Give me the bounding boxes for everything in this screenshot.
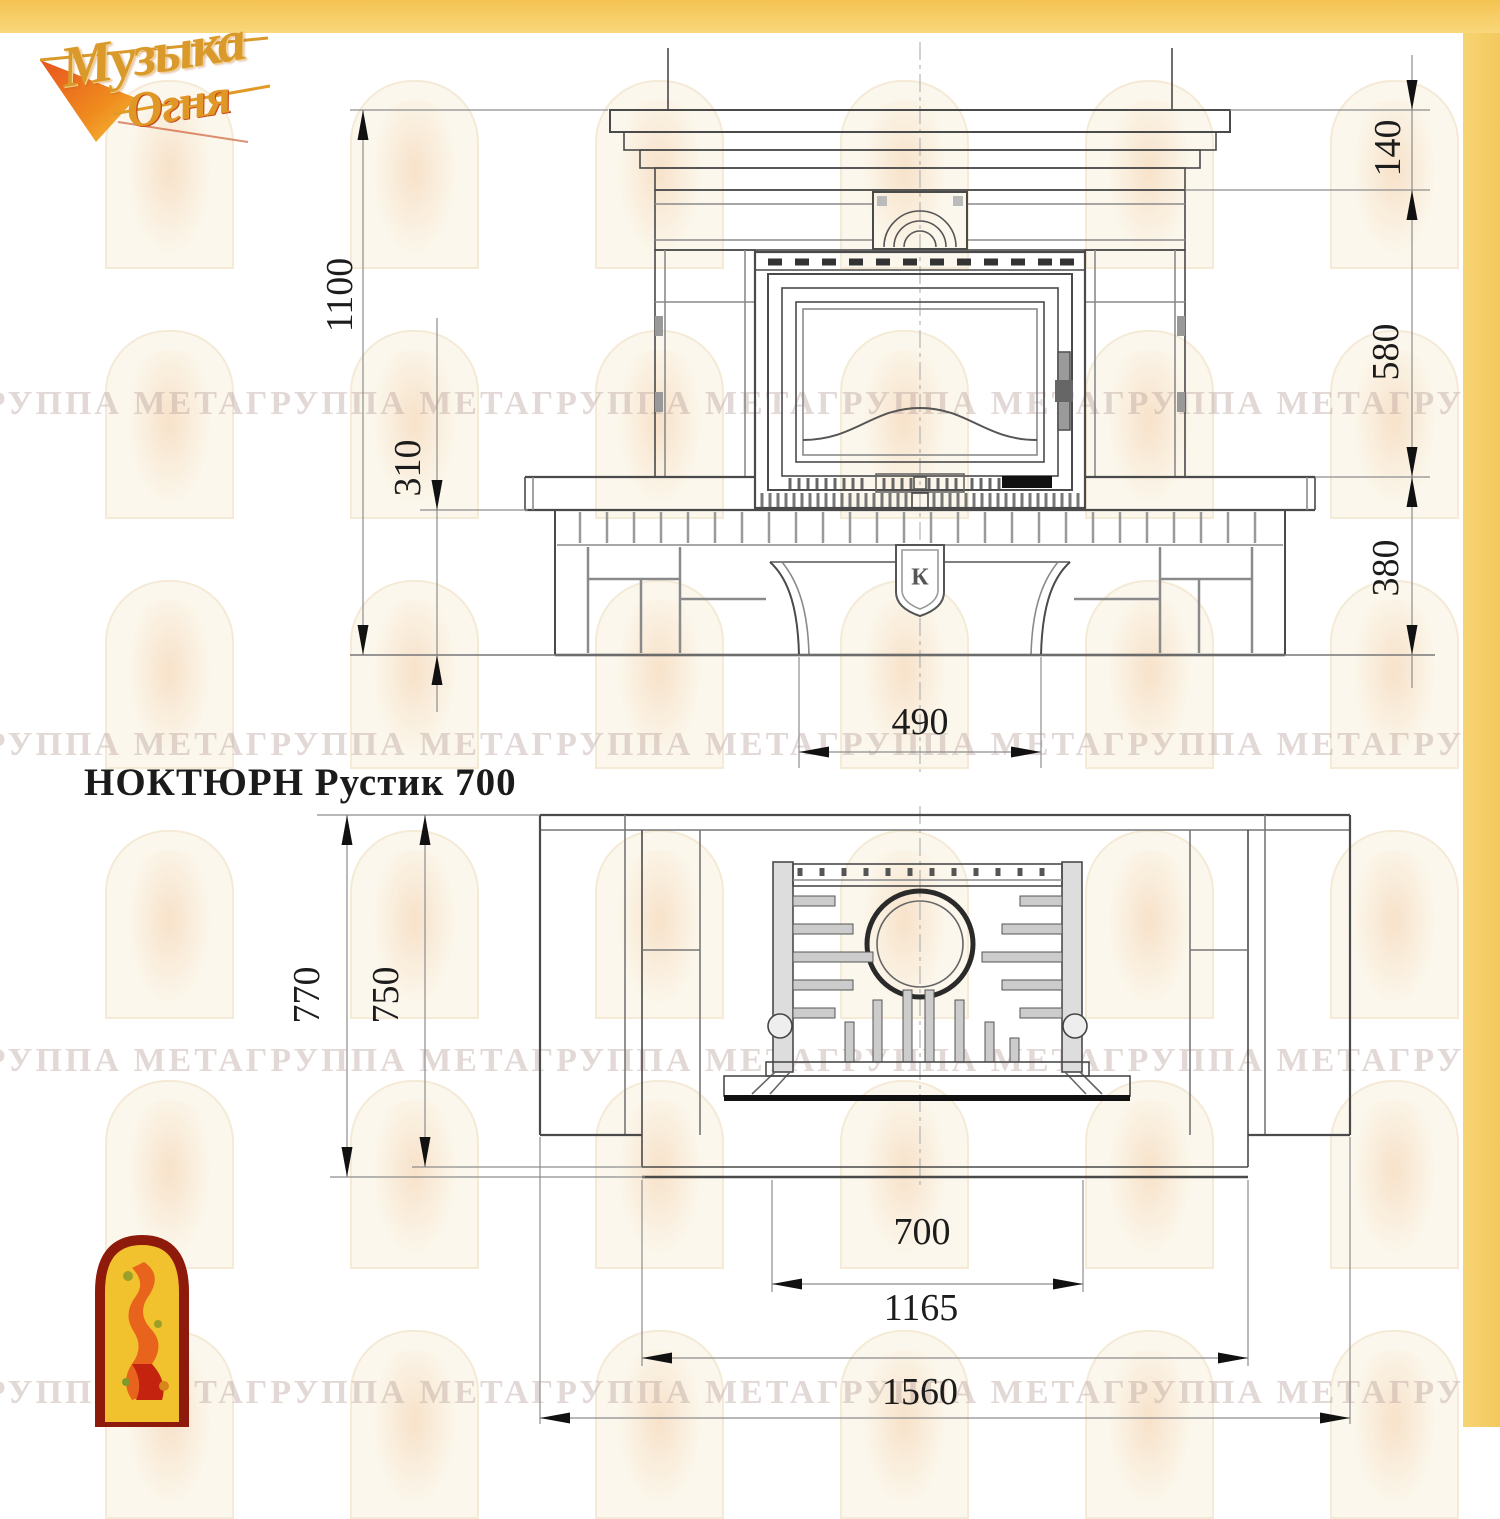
dim-label-portal-width: 490 bbox=[892, 703, 949, 741]
dim-label-shelf-height: 140 bbox=[1369, 120, 1407, 177]
door-vent-left bbox=[790, 478, 862, 489]
page-title: НОКТЮРН Рустик 700 bbox=[84, 760, 517, 805]
dim-label-firebox-height: 580 bbox=[1367, 324, 1405, 381]
page: { "brand": { "word1": "Музыка", "word2":… bbox=[0, 0, 1500, 1427]
door-latch bbox=[1002, 476, 1052, 488]
stone-patchwork-right bbox=[1074, 547, 1252, 653]
convection-fins-left bbox=[793, 896, 873, 1018]
front-view-dimensions bbox=[350, 55, 1430, 768]
side-boss-right bbox=[1063, 1014, 1087, 1038]
convection-fins-right bbox=[982, 896, 1062, 1018]
dimension-arrows bbox=[342, 815, 1351, 1424]
front-view-drawing bbox=[350, 48, 1435, 655]
column-right bbox=[1085, 250, 1185, 477]
dim-label-depth-total: 770 bbox=[288, 967, 326, 1024]
stone-patchwork-left bbox=[588, 547, 766, 653]
shield-letter: К bbox=[911, 565, 928, 592]
technical-drawing-canvas bbox=[0, 0, 1500, 1427]
grate-bars bbox=[845, 990, 1019, 1062]
dim-label-bench-width: 1165 bbox=[884, 1289, 959, 1327]
side-boss-left bbox=[768, 1014, 792, 1038]
dim-label-total-width: 1560 bbox=[882, 1373, 958, 1411]
insert-plan bbox=[724, 862, 1130, 1098]
bench-portal bbox=[770, 545, 1070, 655]
dim-label-bench-height: 380 bbox=[1367, 540, 1405, 597]
plan-view-drawing bbox=[540, 815, 1350, 1177]
dim-label-insert-width: 700 bbox=[894, 1213, 951, 1251]
door-vent-right bbox=[972, 478, 999, 489]
dim-label-depth-body: 750 bbox=[367, 967, 405, 1024]
brick-joints bbox=[580, 512, 1255, 543]
insert-back-ticks bbox=[800, 868, 1042, 876]
column-left bbox=[655, 250, 755, 477]
dim-label-plinth-height: 310 bbox=[389, 440, 427, 497]
dim-label-total-height: 1100 bbox=[321, 258, 359, 333]
